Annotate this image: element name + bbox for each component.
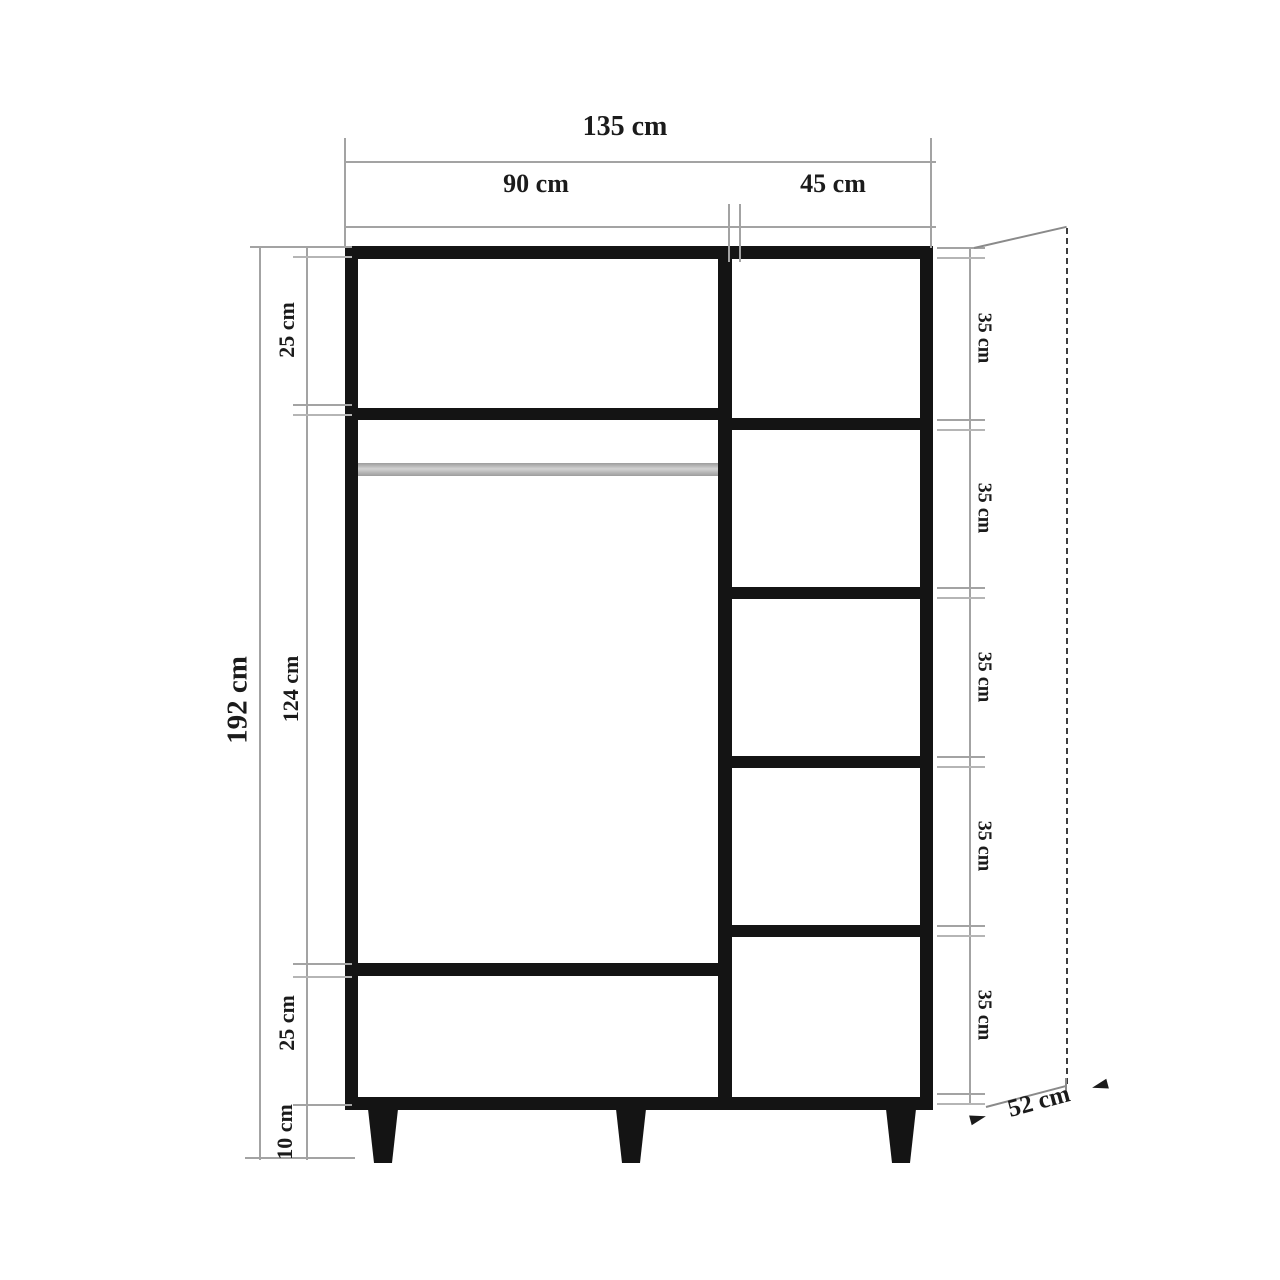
tick-right-2b	[937, 597, 985, 599]
leg-height-label: 10 cm	[272, 1104, 298, 1160]
depth-arrow-right-icon	[1091, 1079, 1109, 1093]
right-shelf-1	[730, 418, 922, 430]
tick-right-4a	[937, 925, 985, 927]
tick-left-top-b	[293, 256, 352, 258]
hanging-rod	[358, 463, 718, 476]
leg-left	[368, 1109, 398, 1163]
tick-right-1a	[937, 419, 985, 421]
tick-right-3b	[937, 766, 985, 768]
tick-right-4b	[937, 935, 985, 937]
wardrobe-technical-diagram: 135 cm 90 cm 45 cm 192 cm 25 cm 124 cm 2…	[0, 0, 1280, 1280]
right-shelf-4	[730, 925, 922, 937]
right-shelf-2	[730, 587, 922, 599]
wardrobe-outer-frame	[345, 246, 933, 1110]
tick-right-3a	[937, 756, 985, 758]
dimension-line-split-width	[345, 226, 936, 228]
right-shelf-3	[730, 756, 922, 768]
tick-left-ground	[245, 1157, 355, 1159]
depth-dashed-line	[1066, 228, 1068, 1084]
tick-left-shelf1-a	[293, 404, 352, 406]
leg-right	[886, 1109, 916, 1163]
depth-edge-top	[974, 226, 1067, 249]
dimension-line-left-segments	[306, 246, 308, 1160]
extension-line-right	[930, 138, 932, 248]
left-bottom-compartment-label: 25 cm	[274, 995, 300, 1051]
extension-line-divider-a	[728, 204, 730, 262]
tick-left-cabinet-bottom	[293, 1104, 352, 1106]
right-width-label: 45 cm	[800, 169, 866, 199]
dimension-line-total-height	[259, 246, 261, 1160]
right-compartment-label-2: 35 cm	[973, 483, 996, 534]
depth-arrow-left-icon	[969, 1111, 987, 1125]
right-compartment-label-1: 35 cm	[973, 313, 996, 364]
right-compartment-label-3: 35 cm	[973, 652, 996, 703]
tick-right-5a	[937, 1093, 985, 1095]
left-bottom-shelf	[356, 963, 720, 976]
depth-label: 52 cm	[1005, 1080, 1073, 1123]
depth-dimension-group: 52 cm	[965, 1064, 1113, 1139]
leg-center	[616, 1109, 646, 1163]
tick-left-shelf2-b	[293, 976, 352, 978]
tick-left-top	[250, 246, 352, 248]
left-top-shelf	[356, 408, 720, 420]
dimension-line-right-segments	[969, 248, 971, 1105]
wardrobe-center-divider	[718, 252, 732, 1104]
tick-left-shelf1-b	[293, 414, 352, 416]
tick-right-0b	[937, 257, 985, 259]
tick-right-1b	[937, 429, 985, 431]
right-compartment-label-4: 35 cm	[973, 821, 996, 872]
tick-left-shelf2-a	[293, 963, 352, 965]
tick-right-2a	[937, 587, 985, 589]
right-compartment-label-5: 35 cm	[973, 990, 996, 1041]
total-height-label: 192 cm	[222, 656, 255, 744]
left-width-label: 90 cm	[503, 169, 569, 199]
extension-line-divider-b	[739, 204, 741, 262]
left-door-height-label: 124 cm	[278, 656, 304, 723]
left-top-compartment-label: 25 cm	[274, 302, 300, 358]
extension-line-left	[344, 138, 346, 248]
total-width-label: 135 cm	[583, 111, 668, 143]
dimension-line-total-width	[345, 161, 936, 163]
